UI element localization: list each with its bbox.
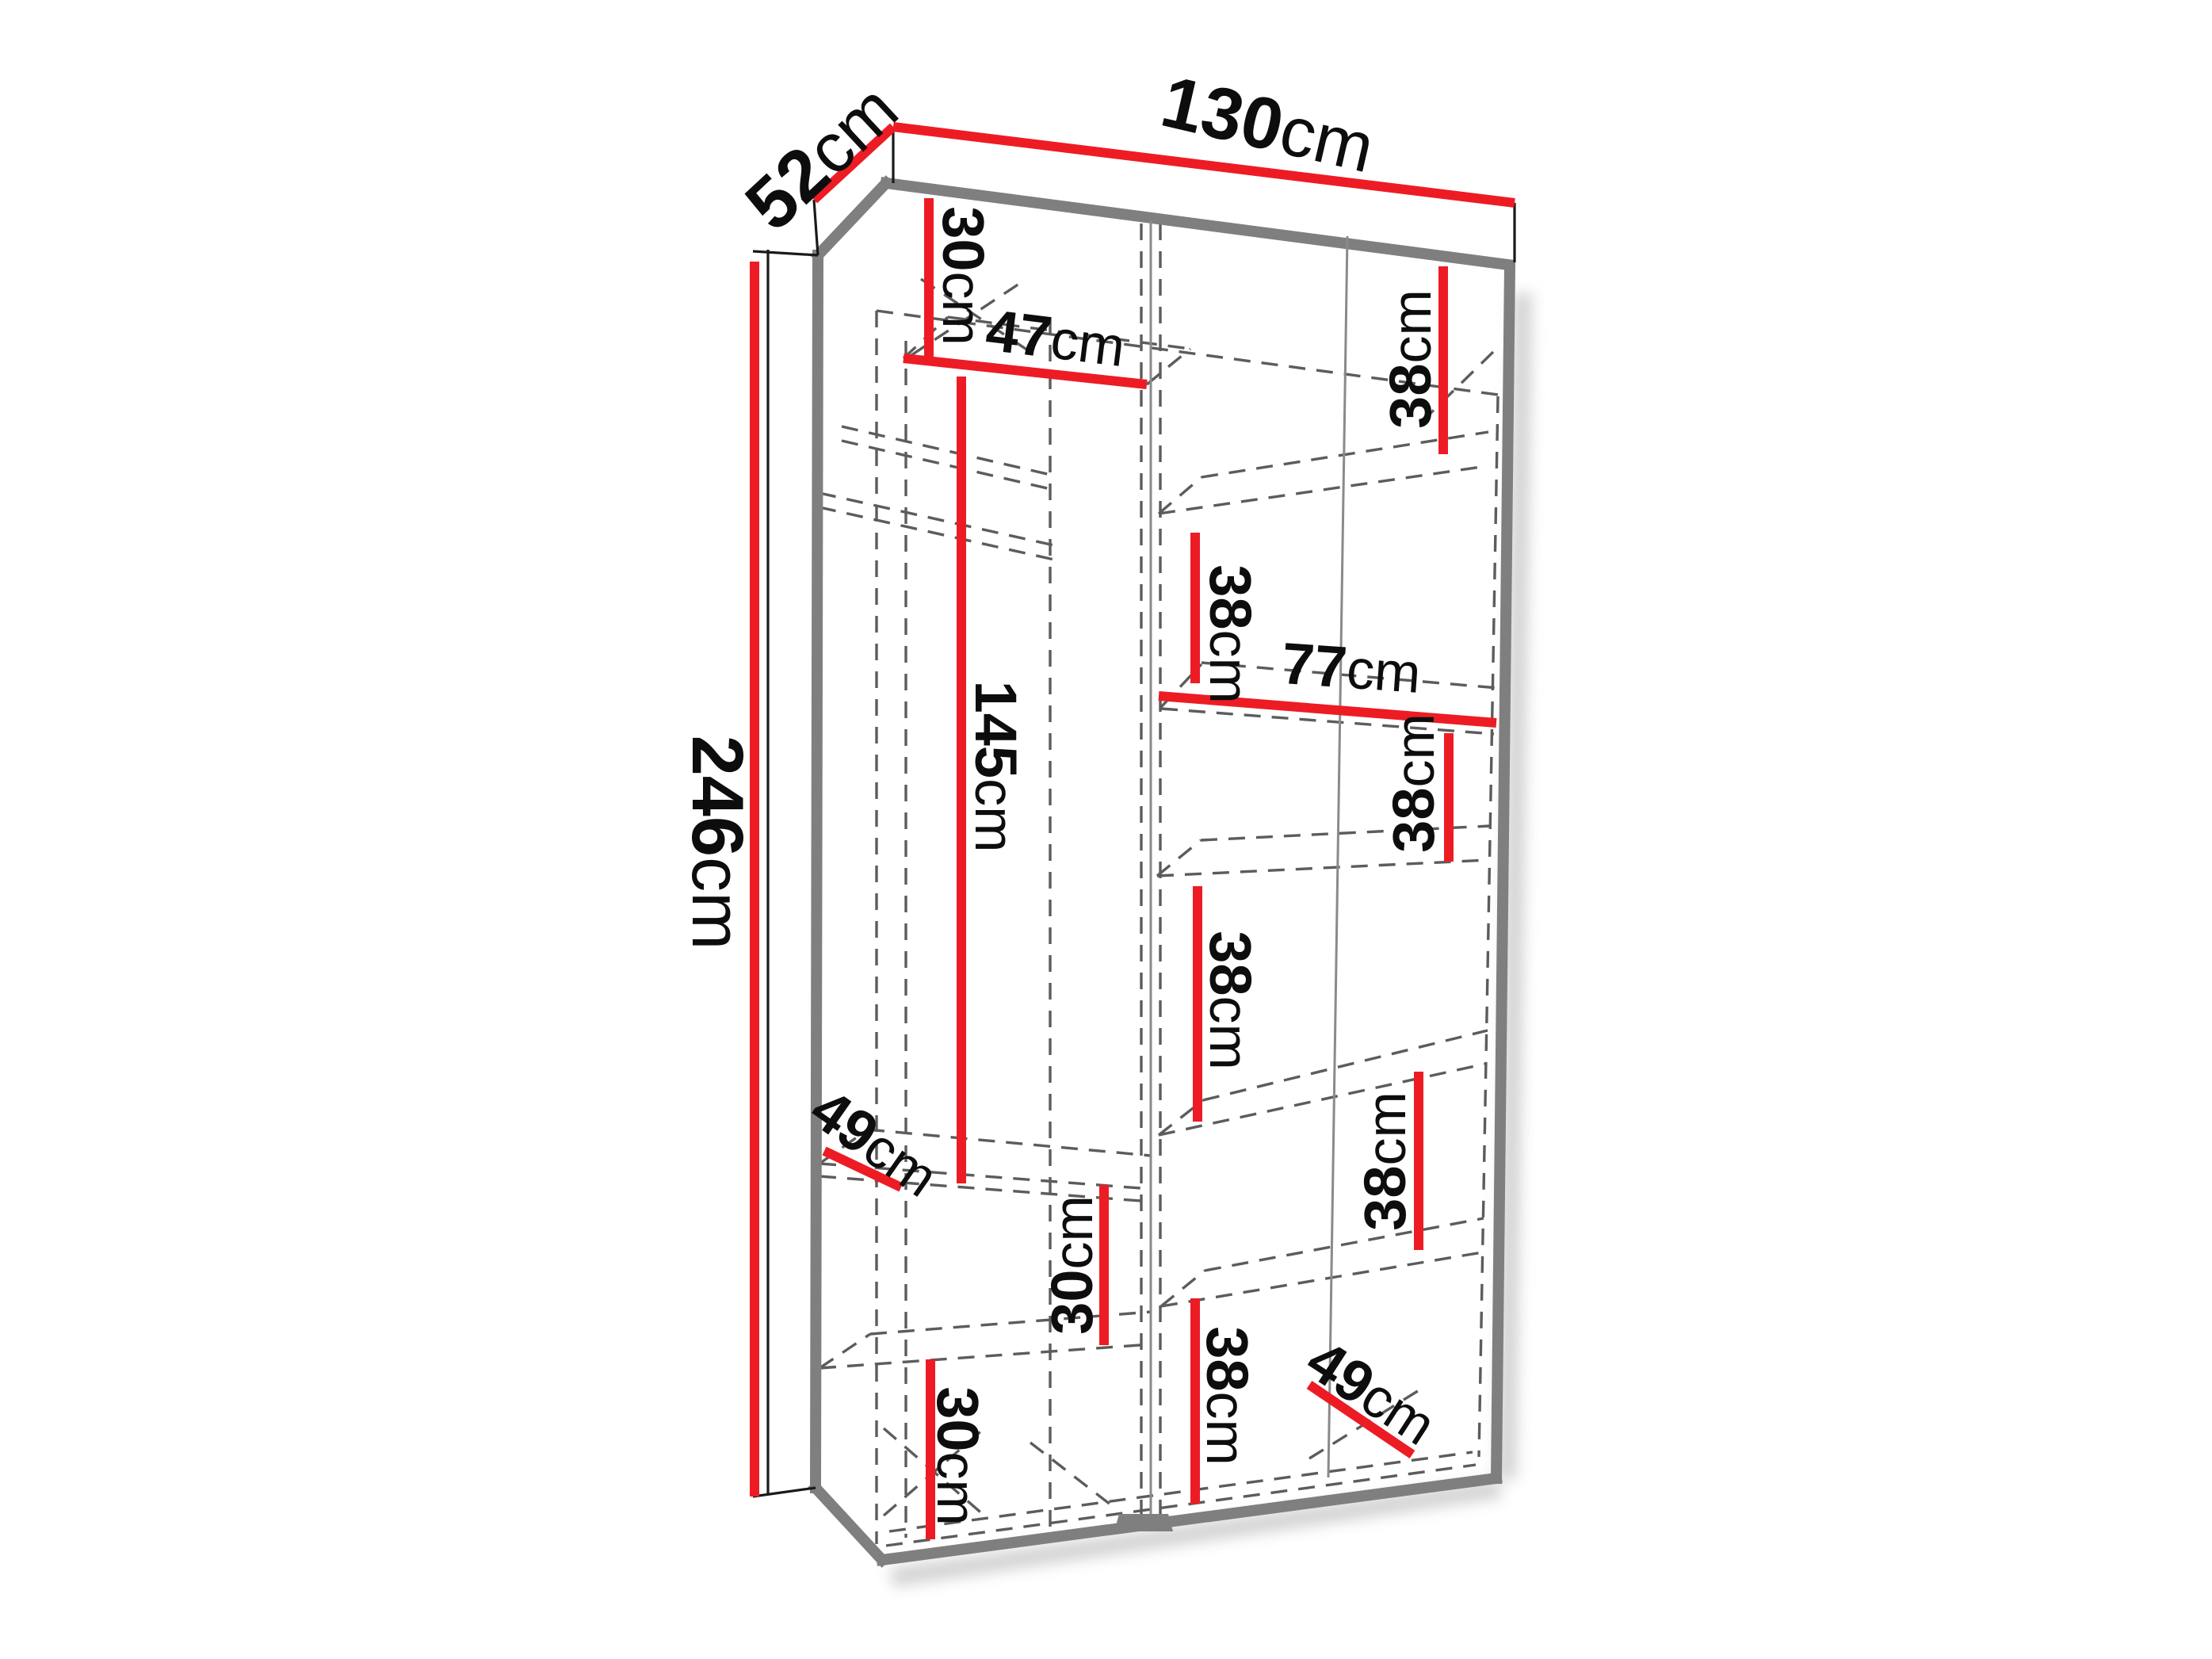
dimension-label-right-38-e: 38cm xyxy=(1352,1091,1418,1231)
diagram-canvas: 130cm52cm246cm30cm47cm38cm38cm77cm38cm14… xyxy=(0,0,2212,1659)
dimension-label-right-38-a: 38cm xyxy=(1377,289,1443,429)
dimension-label-shelf-width-77: 77cm xyxy=(1279,630,1423,705)
wardrobe-diagram: 130cm52cm246cm30cm47cm38cm38cm77cm38cm14… xyxy=(0,0,2212,1659)
dimension-label-right-38-d: 38cm xyxy=(1198,931,1263,1070)
dimension-label-depth-49-left: 49cm xyxy=(799,1076,950,1210)
dimension-label-depth-49-right: 49cm xyxy=(1296,1327,1448,1458)
dimension-label-right-38-b: 38cm xyxy=(1198,564,1263,704)
dimension-label-left-30-b: 30cm xyxy=(925,1386,991,1526)
dimension-label-depth-52: 52cm xyxy=(731,68,913,246)
dimension-label-left-30-a: 30cm xyxy=(1039,1195,1105,1335)
dimension-label-hanging-145: 145cm xyxy=(963,681,1029,853)
door-guide xyxy=(1114,1514,1173,1531)
dimension-label-right-38-f: 38cm xyxy=(1194,1326,1260,1466)
dimension-label-right-38-c: 38cm xyxy=(1381,713,1446,853)
dimension-label-height-246: 246cm xyxy=(677,736,758,950)
door-seam xyxy=(1328,236,1347,1477)
dimension-labels: 130cm52cm246cm30cm47cm38cm38cm77cm38cm14… xyxy=(677,61,1448,1526)
